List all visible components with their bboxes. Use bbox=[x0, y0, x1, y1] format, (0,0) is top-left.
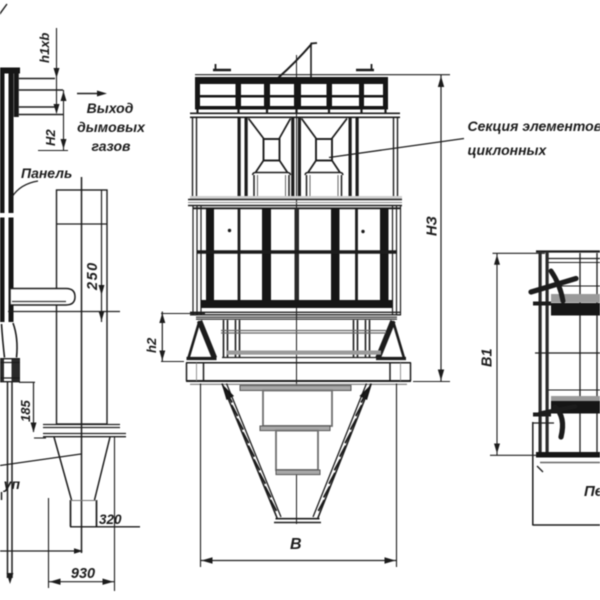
svg-text:185: 185 bbox=[18, 400, 33, 422]
svg-text:дымовых: дымовых bbox=[77, 119, 146, 135]
svg-text:Пе: Пе bbox=[584, 483, 600, 500]
svg-text:Панель: Панель bbox=[21, 165, 72, 181]
svg-text:930: 930 bbox=[71, 566, 95, 582]
svg-text:НЗ: НЗ bbox=[425, 216, 441, 236]
svg-text:газов: газов bbox=[91, 138, 131, 154]
svg-text:уп: уп bbox=[3, 476, 21, 492]
svg-text:В: В bbox=[290, 536, 302, 553]
svg-text:Секция элементов: Секция элементов bbox=[468, 118, 600, 134]
svg-text:H2: H2 bbox=[43, 129, 58, 146]
svg-text:Выход: Выход bbox=[87, 100, 134, 116]
svg-text:320: 320 bbox=[99, 512, 122, 527]
svg-text:циклонных: циклонных bbox=[468, 142, 548, 158]
svg-text:h1xb: h1xb bbox=[37, 33, 52, 63]
svg-text:В1: В1 bbox=[480, 348, 496, 367]
svg-text:h2: h2 bbox=[144, 337, 159, 353]
svg-text:250: 250 bbox=[85, 261, 101, 291]
